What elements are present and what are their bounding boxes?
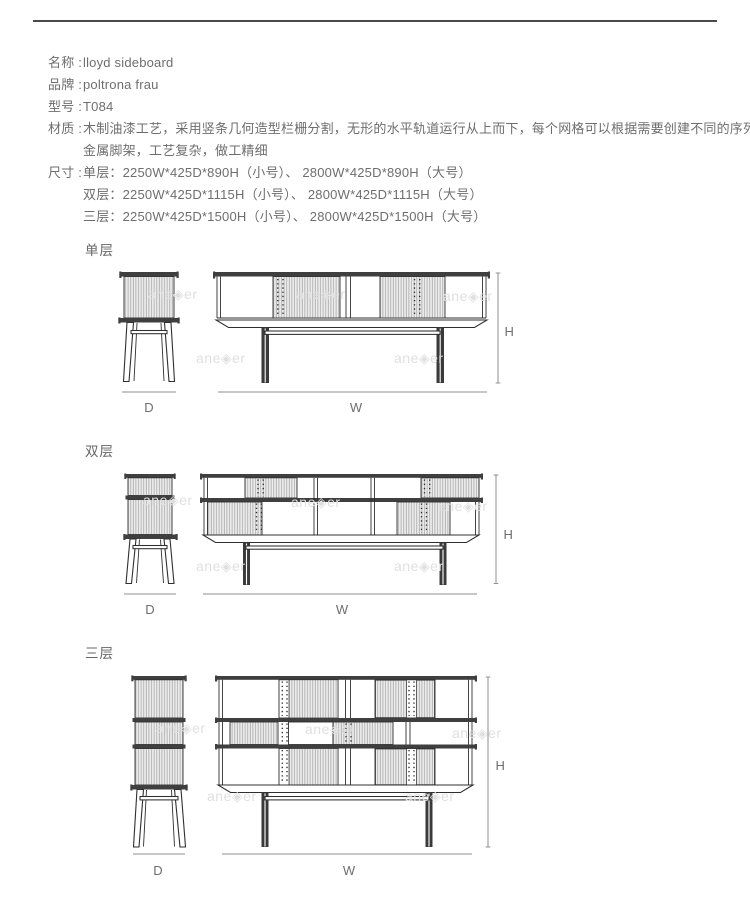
width-label: W <box>350 400 363 415</box>
triple-layer-front-view <box>215 676 477 848</box>
spec-value: 双层：2250W*425D*1115H（小号）、 2800W*425D*1115… <box>83 187 483 202</box>
spec-value: 木制油漆工艺，采用竖条几何造型栏栅分割，无形的水平轨道运行从上而下，每个网格可以… <box>83 121 750 136</box>
depth-label: D <box>144 400 153 415</box>
spec-label: 名称 : <box>48 52 83 71</box>
furniture-dimension-drawings: D W H <box>0 230 750 922</box>
spec-value: T084 <box>83 99 113 114</box>
spec-row-model: 型号 :T084 <box>48 96 728 115</box>
spec-label: 型号 : <box>48 96 83 115</box>
width-label: W <box>336 602 349 617</box>
single-layer-side-view <box>118 272 179 382</box>
height-label: H <box>496 758 505 773</box>
spec-label: 尺寸 : <box>48 162 83 181</box>
width-label: W <box>343 863 356 878</box>
spec-row-size-triple: 三层：2250W*425D*1500H（小号）、 2800W*425D*1500… <box>48 206 728 225</box>
spec-label: 材质 : <box>48 118 83 137</box>
spec-row-material-cont: 金属脚架，工艺复杂，做工精细 <box>48 140 728 159</box>
spec-value: 三层：2250W*425D*1500H（小号）、 2800W*425D*1500… <box>83 209 487 224</box>
double-layer-front-view <box>200 474 483 586</box>
height-label: H <box>505 324 514 339</box>
depth-label: D <box>145 602 154 617</box>
header-divider <box>33 20 717 22</box>
product-spec-page: 名称 :lloyd sideboard 品牌 :poltrona frau 型号… <box>0 0 750 922</box>
spec-value: 单层：2250W*425D*890H（小号）、 2800W*425D*890H（… <box>83 165 472 180</box>
spec-row-brand: 品牌 :poltrona frau <box>48 74 728 93</box>
single-layer-front-view <box>213 272 490 384</box>
spec-value: poltrona frau <box>83 77 159 92</box>
spec-row-name: 名称 :lloyd sideboard <box>48 52 728 71</box>
spec-label: 品牌 : <box>48 74 83 93</box>
spec-row-size-single: 尺寸 :单层：2250W*425D*890H（小号）、 2800W*425D*8… <box>48 162 728 181</box>
spec-value: lloyd sideboard <box>83 55 173 70</box>
height-label: H <box>504 527 513 542</box>
double-layer-side-view <box>123 474 177 584</box>
triple-layer-side-view <box>130 676 187 848</box>
spec-row-size-double: 双层：2250W*425D*1115H（小号）、 2800W*425D*1115… <box>48 184 728 203</box>
depth-label: D <box>153 863 162 878</box>
spec-row-material: 材质 :木制油漆工艺，采用竖条几何造型栏栅分割，无形的水平轨道运行从上而下，每个… <box>48 118 728 137</box>
spec-value: 金属脚架，工艺复杂，做工精细 <box>83 143 268 158</box>
